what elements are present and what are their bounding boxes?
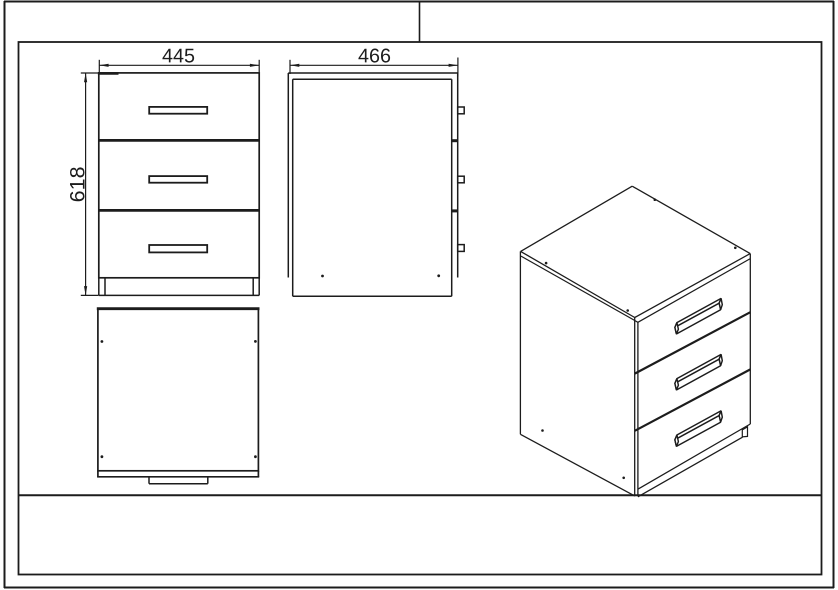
svg-text:618: 618 bbox=[66, 166, 90, 202]
svg-text:466: 466 bbox=[358, 45, 391, 67]
svg-text:445: 445 bbox=[162, 45, 195, 67]
